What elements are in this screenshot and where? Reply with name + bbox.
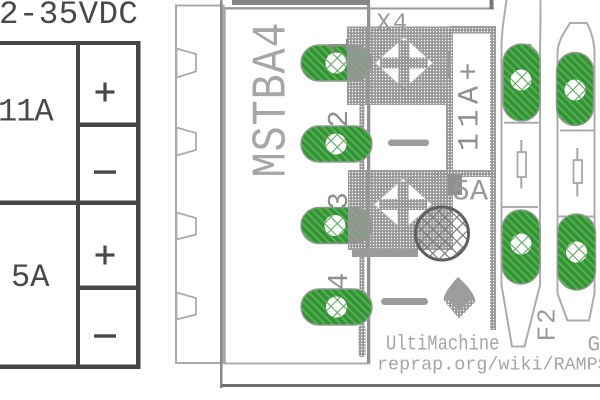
svg-text:4: 4 <box>323 273 356 290</box>
svg-text:5A: 5A <box>452 176 488 210</box>
svg-text:F2: F2 <box>533 306 563 341</box>
svg-text:11A: 11A <box>0 94 54 131</box>
svg-text:MSTBA4: MSTBA4 <box>244 21 299 177</box>
svg-text:reprap.org/wiki/RAMPS: reprap.org/wiki/RAMPS <box>377 355 600 376</box>
svg-text:2-35VDC: 2-35VDC <box>0 0 138 33</box>
svg-text:X4: X4 <box>377 11 410 38</box>
svg-text:GN: GN <box>588 333 600 357</box>
svg-text:5A: 5A <box>11 259 50 296</box>
svg-text:2: 2 <box>323 110 356 127</box>
svg-text:UltiMachine: UltiMachine <box>386 332 499 356</box>
svg-text:11A+: 11A+ <box>454 57 488 151</box>
